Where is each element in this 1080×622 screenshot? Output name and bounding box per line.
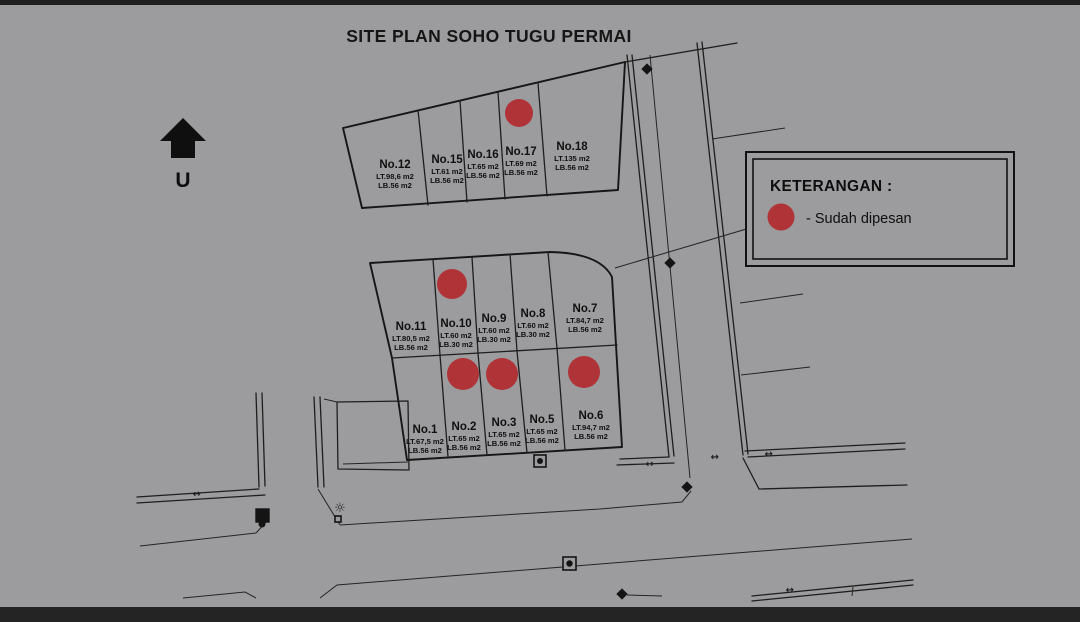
plot-label-no17: No.17 LT.69 m2 LB.56 m2 [504, 146, 538, 177]
plot-no18-lt: LT.135 m2 [554, 154, 590, 163]
plot-label-no8: No.8 LT.60 m2 LB.30 m2 [516, 308, 550, 339]
plot-no15-lt: LT.61 m2 [431, 167, 463, 176]
plot-no9-number: No.9 [482, 313, 507, 325]
plot-no1-number: No.1 [413, 424, 439, 436]
plot-label-no6: No.6 LT.94,7 m2 LB.56 m2 [572, 410, 610, 441]
plot-blocks [343, 62, 625, 460]
legend-title: KETERANGAN : [770, 178, 892, 195]
plot-no2-lt: LT.65 m2 [448, 434, 480, 443]
plot-no9-lb: LB.30 m2 [477, 335, 511, 344]
plot-no10-lt: LT.60 m2 [440, 331, 472, 340]
utility-marker-dot [616, 588, 627, 599]
plot-no16-lt: LT.65 m2 [467, 162, 499, 171]
plot-no8-lb: LB.30 m2 [516, 330, 550, 339]
reserved-marker-no17 [505, 99, 533, 127]
plot-no6-number: No.6 [579, 410, 604, 422]
plot-label-no2: No.2 LT.65 m2 LB.56 m2 [447, 421, 481, 452]
plot-no17-lb: LB.56 m2 [504, 168, 538, 177]
plot-no3-number: No.3 [492, 417, 517, 429]
plot-no17-lt: LT.69 m2 [505, 159, 537, 168]
plot-no12-lt: LT.98,6 m2 [376, 172, 414, 181]
double-arrow-mark: ↔ [764, 449, 773, 460]
plot-no5-number: No.5 [530, 414, 556, 426]
reserved-marker-no10 [437, 269, 467, 299]
plot-label-no1: No.1 LT.67,5 m2 LB.56 m2 [406, 424, 444, 455]
double-arrow-mark: ↔ [192, 489, 201, 501]
plot-no16-lb: LB.56 m2 [466, 171, 500, 180]
plot-no5-lt: LT.65 m2 [526, 427, 558, 436]
plot-no10-lb: LB.30 m2 [439, 340, 473, 349]
manhole-marker [534, 455, 546, 467]
plot-no18-number: No.18 [556, 141, 588, 153]
legend-reserved-dot [768, 204, 795, 231]
plot-no6-lb: LB.56 m2 [574, 432, 608, 441]
double-arrow-mark: ↔ [645, 459, 654, 470]
plot-label-no16: No.16 LT.65 m2 LB.56 m2 [466, 149, 500, 180]
plot-no12-lb: LB.56 m2 [378, 181, 412, 190]
plot-no3-lt: LT.65 m2 [488, 430, 520, 439]
plot-label-no5: No.5 LT.65 m2 LB.56 m2 [525, 414, 559, 445]
plot-no1-lb: LB.56 m2 [408, 446, 442, 455]
north-label: U [175, 169, 190, 192]
plot-no1-lt: LT.67,5 m2 [406, 437, 444, 446]
plot-no15-lb: LB.56 m2 [430, 176, 464, 185]
plot-label-no11: No.11 LT.80,5 m2 LB.56 m2 [392, 321, 430, 352]
plot-label-no15: No.15 LT.61 m2 LB.56 m2 [430, 154, 464, 185]
plot-no9-lt: LT.60 m2 [478, 326, 510, 335]
plot-label-no9: No.9 LT.60 m2 LB.30 m2 [477, 313, 511, 344]
plot-no8-lt: LT.60 m2 [517, 321, 549, 330]
small-box-marker [335, 516, 341, 522]
plot-no11-number: No.11 [396, 321, 427, 333]
north-arrow-icon: U [160, 118, 206, 192]
top-frame-bar [0, 0, 1080, 5]
reserved-marker-no3 [486, 358, 518, 390]
site-plan-screenshot: SITE PLAN SOHO TUGU PERMAI U [0, 0, 1080, 622]
plot-label-no10: No.10 LT.60 m2 LB.30 m2 [439, 318, 473, 349]
double-arrow-mark: ↔ [785, 585, 794, 597]
plot-no2-lb: LB.56 m2 [447, 443, 481, 452]
plot-label-no7: No.7 LT.84,7 m2 LB.56 m2 [566, 303, 604, 334]
streetlight-icon: ☼ [334, 501, 346, 516]
page-title: SITE PLAN SOHO TUGU PERMAI [346, 26, 632, 46]
plot-label-no3: No.3 LT.65 m2 LB.56 m2 [487, 417, 521, 448]
plot-no6-lt: LT.94,7 m2 [572, 423, 610, 432]
legend-item-label: - Sudah dipesan [806, 211, 912, 227]
reserved-marker-no2 [447, 358, 479, 390]
plot-no8-number: No.8 [521, 308, 547, 320]
bottom-frame-bar [0, 607, 1080, 622]
plot-no15-number: No.15 [431, 154, 463, 166]
plot-no7-lt: LT.84,7 m2 [566, 316, 604, 325]
legend: KETERANGAN : - Sudah dipesan [615, 152, 1014, 268]
utility-marker-dot [681, 481, 692, 492]
plot-no10-number: No.10 [440, 318, 471, 330]
utility-marker-dot [664, 257, 675, 268]
site-plan-drawing: SITE PLAN SOHO TUGU PERMAI U [0, 0, 1080, 622]
plot-no7-number: No.7 [573, 303, 598, 315]
plot-no18-lb: LB.56 m2 [555, 163, 589, 172]
plot-no5-lb: LB.56 m2 [525, 436, 559, 445]
manhole-marker [563, 557, 576, 570]
plot-no12-number: No.12 [379, 159, 410, 171]
manhole-marker [256, 509, 269, 528]
plot-no17-number: No.17 [505, 146, 536, 158]
plot-no16-number: No.16 [467, 149, 498, 161]
plot-no11-lb: LB.56 m2 [394, 343, 428, 352]
plot-label-no12: No.12 LT.98,6 m2 LB.56 m2 [376, 159, 414, 190]
plot-labels: No.12 LT.98,6 m2 LB.56 m2 No.15 LT.61 m2… [376, 141, 610, 455]
plot-label-no18: No.18 LT.135 m2 LB.56 m2 [554, 141, 590, 172]
plot-no2-number: No.2 [452, 421, 477, 433]
double-arrow-mark: ↔ [710, 452, 719, 463]
reserved-marker-no6 [568, 356, 600, 388]
plot-no3-lb: LB.56 m2 [487, 439, 521, 448]
plot-no11-lt: LT.80,5 m2 [392, 334, 430, 343]
plot-no7-lb: LB.56 m2 [568, 325, 602, 334]
